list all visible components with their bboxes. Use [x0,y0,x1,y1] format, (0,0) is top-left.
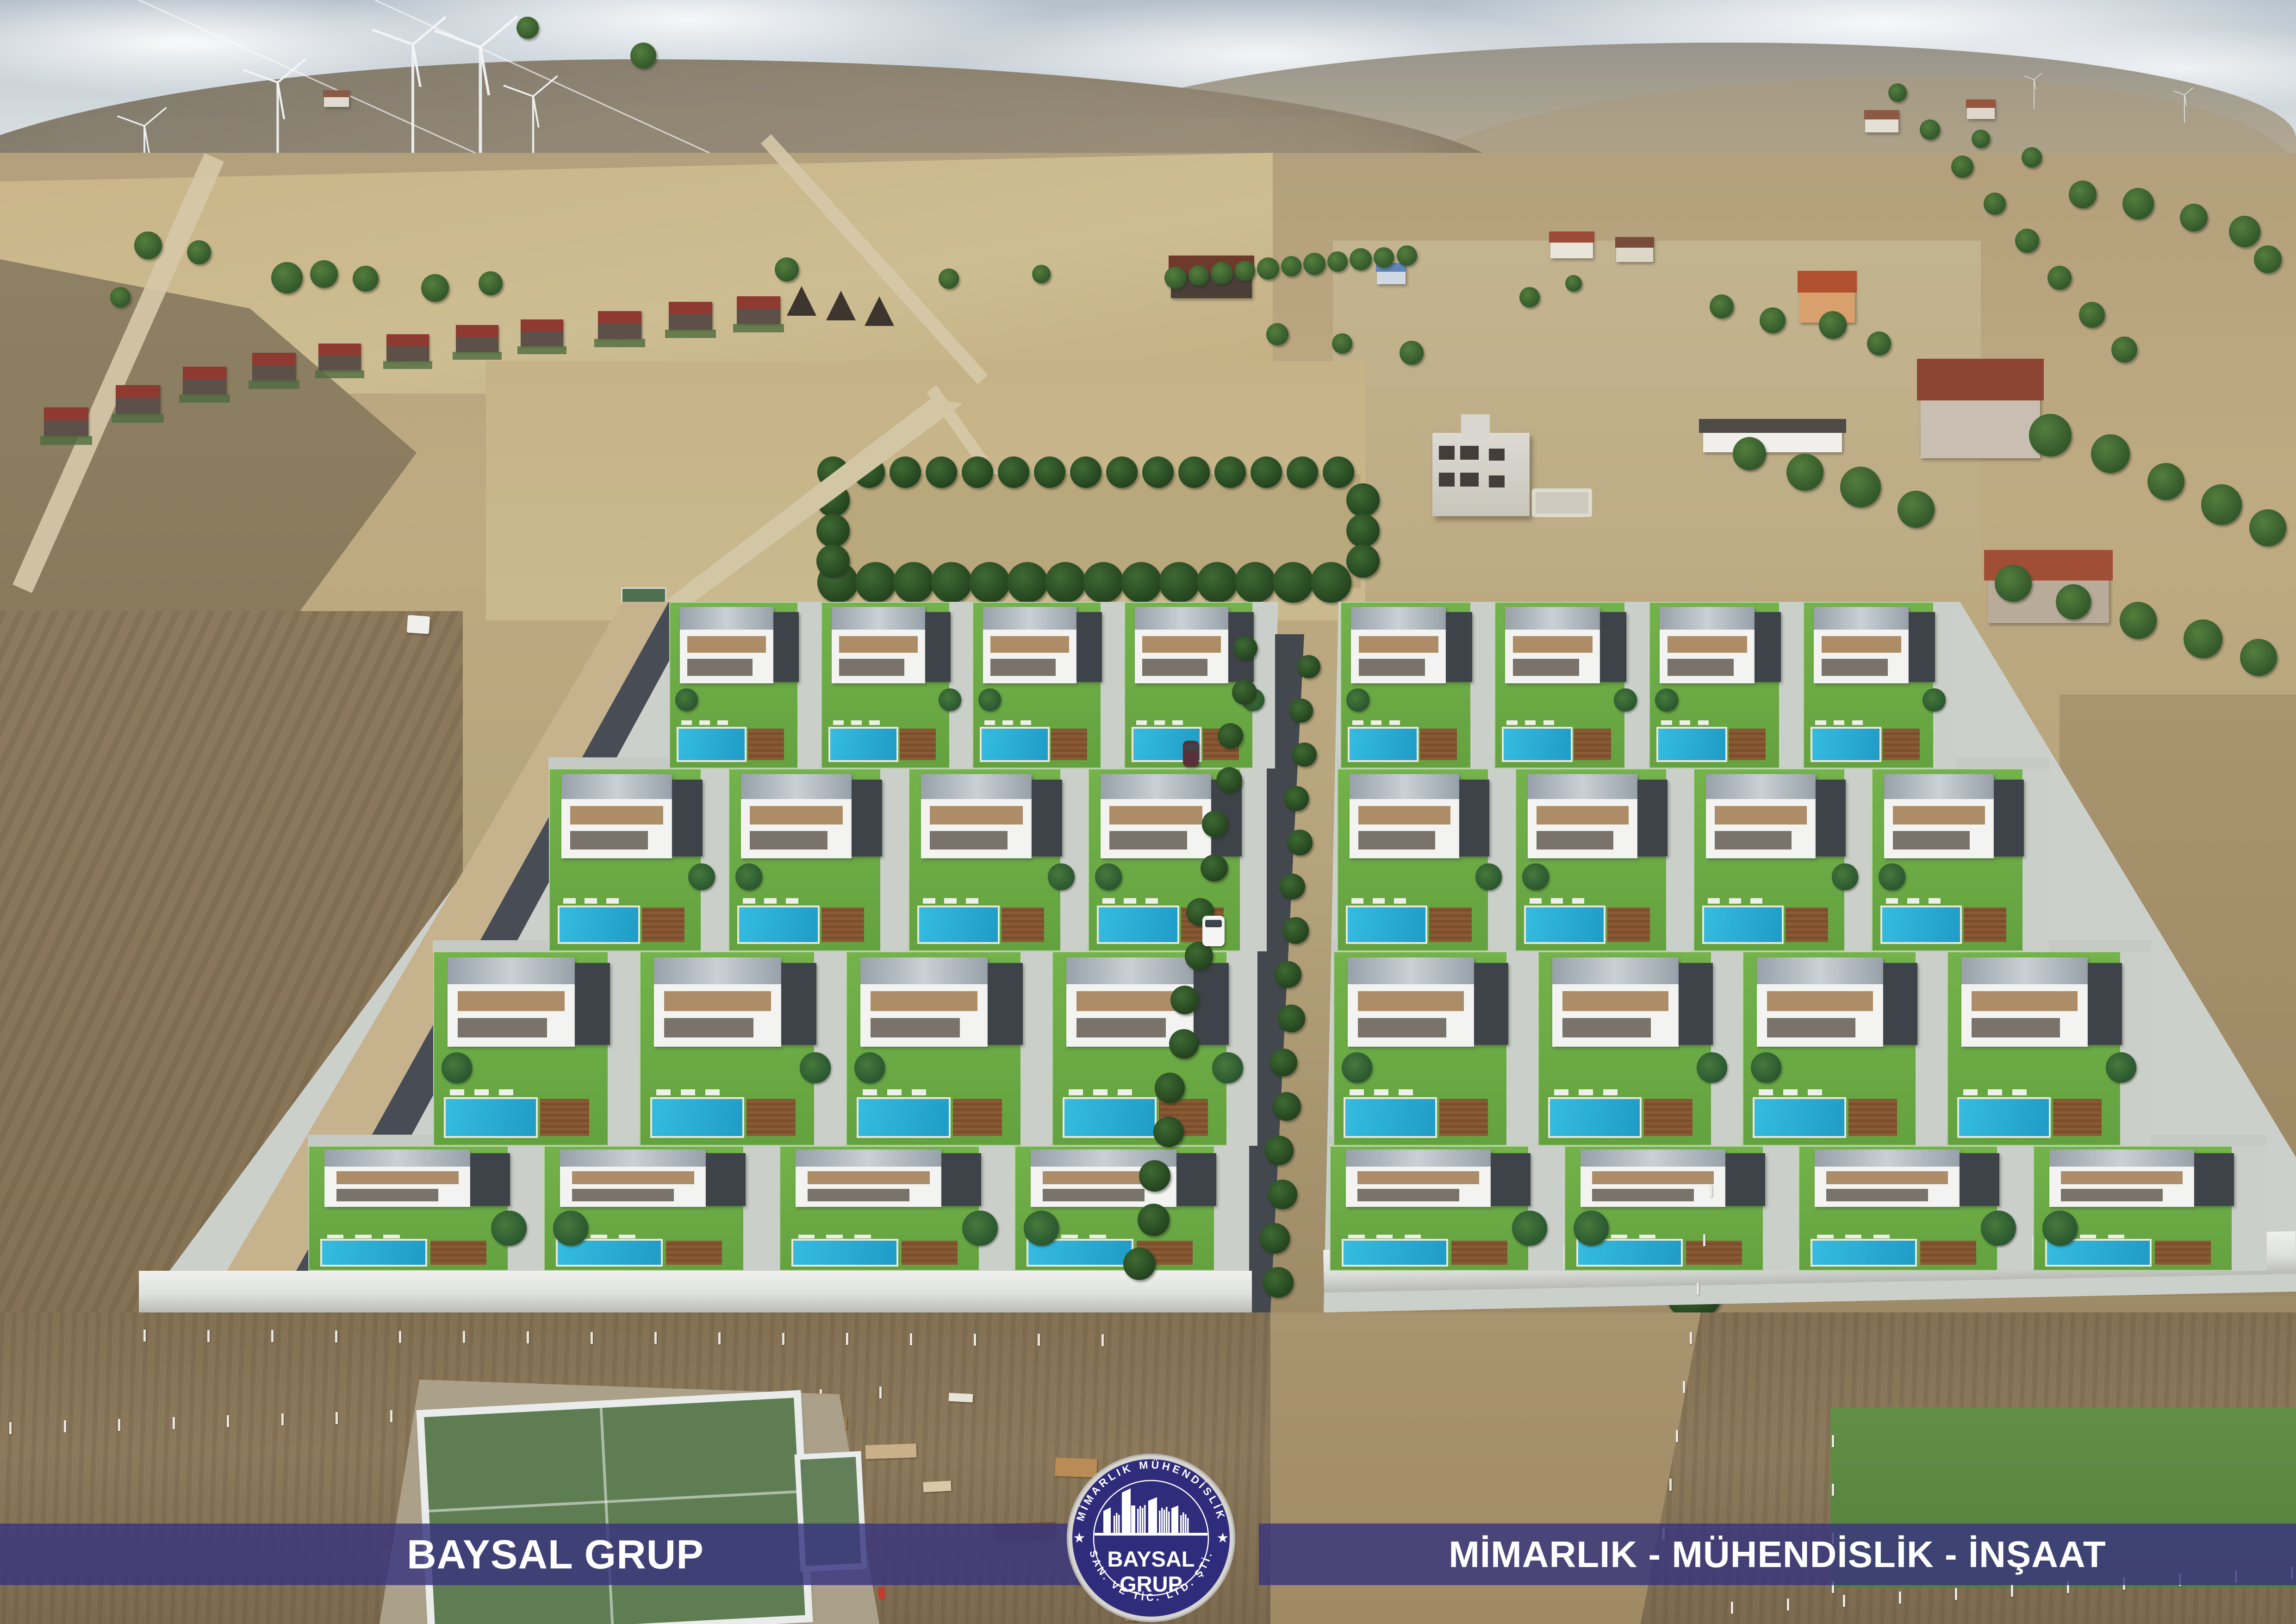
villa-pool-deck [902,1241,958,1264]
villa-house [1135,607,1228,684]
line [480,16,518,47]
tree [1233,636,1257,660]
sun-lounger [1661,720,1672,725]
tree [926,456,957,488]
tree [1214,456,1246,488]
villa-driveway [508,1146,543,1271]
tree [1289,699,1313,723]
villa-roof [1706,774,1816,800]
fence-post [9,1422,12,1434]
villa-window-band [1537,831,1613,849]
fence-post [118,1419,120,1431]
tree [1332,333,1352,354]
villa-house [2049,1149,2194,1207]
villa-dark-wing [1446,612,1472,682]
villa-window-band [1537,806,1629,824]
villa-pool [919,907,998,942]
villa-window-band [1972,991,2078,1011]
background-house [252,353,296,381]
villa-dark-wing [1725,1153,1765,1206]
house-roof [252,353,296,365]
house-yard-hedge [179,394,230,403]
tree [1070,456,1101,488]
tree [1400,341,1424,365]
sun-lounger [1089,1235,1106,1238]
tree [1251,456,1282,488]
house-yard-hedge [315,370,365,378]
car-on-road [1202,916,1225,946]
villa-window-band [572,1171,694,1184]
villa-pool-deck [1451,1241,1507,1264]
distant-house [1865,110,1898,132]
villa-driveway [1020,951,1052,1146]
villa-window-band [1826,1189,1928,1201]
house-roof [44,407,88,420]
fence-post [336,1412,338,1424]
palm-tree [962,1211,997,1246]
roof-ridge [429,1490,799,1512]
villa [1515,768,1692,951]
villa-pool [560,907,638,942]
villa-driveway [1711,951,1742,1146]
palm-tree [442,1052,473,1083]
tree [2029,414,2072,456]
villa [1649,602,1802,768]
unfinished-building [1432,433,1530,516]
villa-pool [1882,907,1960,942]
villa-window-band [750,831,828,849]
sun-lounger [1815,720,1826,725]
tree [1920,119,1940,140]
tree [1263,1267,1294,1298]
villa-roof [832,607,925,630]
tree [1153,1117,1184,1148]
tree [271,262,303,294]
tree [1211,262,1233,284]
sun-lounger [1348,1235,1364,1238]
sun-lounger [984,720,995,725]
house-yard-hedge [112,414,163,423]
tree [1034,456,1065,488]
tree [1733,437,1766,470]
villa-house [1346,1149,1491,1207]
tree [816,483,850,517]
tree [1155,1073,1185,1103]
tree [1519,287,1540,307]
villa-house [560,1149,705,1207]
villa-driveway [1916,951,1946,1146]
tree [1264,1136,1294,1165]
tree [1327,251,1348,272]
tree [1840,467,1881,507]
villa-dark-wing [1816,780,1846,856]
villa-driveway [2022,768,2049,951]
villa-driveway [1101,602,1123,768]
fence-post [1101,1334,1104,1346]
palm-tree [1923,688,1946,712]
house-roof [386,334,429,346]
tree [2249,509,2286,546]
villa-window-band [570,831,648,849]
villa-pool-deck [1607,907,1650,942]
unfinished-pool-structure [1532,488,1592,517]
villa-pool [1755,1099,1844,1136]
villa-window-band [1142,659,1207,675]
background-house [737,296,780,324]
villa-driveway [743,1146,778,1271]
perimeter-wall-west [139,1271,1252,1312]
sun-lounger [699,720,710,725]
palm-tree [1512,1211,1547,1246]
villa-window-band [1513,636,1593,653]
wind-turbine-icon [2025,73,2042,109]
green-roof-shack [622,589,665,610]
villa-window-band [664,1018,753,1038]
villa-pool-deck [900,729,936,760]
fence-post [390,1410,392,1422]
roof-ridge [600,1408,614,1624]
villa-driveway [1666,768,1692,951]
background-house [598,311,641,339]
palm-tree [1346,688,1369,712]
villa-pool [1350,729,1417,760]
villa-window-band [570,806,663,824]
villa-pool-deck [953,1099,1002,1136]
fence-post [2011,1585,2013,1597]
sun-lounger [1886,898,1898,904]
villa [308,1146,543,1271]
tree [853,456,885,488]
villa-house [1884,774,1994,858]
villa-roof [1101,774,1211,800]
villa-window-band [1767,991,1873,1011]
fence-post [64,1420,66,1432]
tree [187,240,211,264]
debris-pile [923,1480,951,1492]
villa [1742,951,1946,1146]
villa-dark-wing [1637,780,1668,856]
sun-lounger [1834,720,1844,725]
villa-dark-wing [781,963,816,1044]
distant-house [1616,237,1653,262]
tree [1218,723,1243,749]
palm-tree [688,863,715,890]
vehicle-glass [1205,920,1222,927]
villa-pool-deck [642,907,685,942]
villa-pool-deck [2155,1241,2211,1264]
window-opening [1439,446,1455,460]
sun-lounger [1394,898,1406,904]
tree [1032,265,1051,283]
villa-window-band [336,1171,459,1184]
tree [1083,562,1124,603]
villa-house [1350,774,1459,858]
tree [1142,456,1174,488]
tree [2091,434,2130,473]
villa-window-band [1109,831,1187,849]
sun-lounger [1611,1235,1627,1238]
fence-post [227,1415,229,1427]
distant-house [1550,231,1593,258]
bar [1137,1509,1139,1534]
villa-window-band [2061,1171,2183,1184]
tree [2047,266,2072,290]
villa-driveway [2232,1146,2267,1271]
villa-window-band [1767,1018,1855,1038]
palm-tree [1212,1052,1243,1083]
villa [1538,951,1742,1146]
villa [728,768,907,951]
tree [1972,130,1990,148]
sun-lounger [966,898,978,904]
tree [1819,311,1847,339]
villa [1340,602,1493,768]
fence-post [281,1413,284,1425]
line [118,116,144,126]
villa-pool [1526,907,1604,942]
sun-lounger [923,898,935,904]
sun-lounger [851,720,862,725]
sun-lounger [355,1235,371,1238]
villa [1693,768,1871,951]
tree [939,269,959,289]
villa-pool [322,1241,425,1264]
sun-lounger [1350,1089,1364,1095]
palm-tree [1751,1052,1781,1083]
sun-lounger [1154,720,1165,725]
villa-driveway [949,602,972,768]
sun-lounger [1708,898,1720,904]
tree [1201,855,1228,882]
background-house [44,407,88,436]
tree [1178,456,1210,488]
villa-window-band [1893,806,1985,824]
background-house [318,344,361,370]
villa-roof [1346,1149,1491,1167]
villa-dark-wing [1679,963,1713,1044]
tree [630,43,656,69]
villa [1564,1146,1798,1271]
villa-window-band [1826,1171,1948,1184]
villa [433,951,639,1146]
villa-roof [1815,1149,1960,1167]
villa-roof [860,957,988,984]
villa-dark-wing [1194,963,1228,1044]
tree [1007,562,1048,603]
tree [1397,245,1417,266]
villa-pool-deck [1051,729,1087,760]
villa-pool-deck [1420,729,1456,760]
villa-window-band [1358,1018,1446,1038]
bar [1182,1512,1184,1534]
villa-pool [1345,1099,1435,1136]
tree [2122,188,2154,219]
villa-window-band [1592,1189,1693,1201]
house-yard-hedge [383,361,433,369]
distant-house [1967,100,1995,119]
villa-pool-deck [1964,907,2006,942]
fence-post [1683,1381,1685,1393]
villa-pool [982,729,1048,760]
tree [1760,307,1786,333]
villa-roof [560,1149,705,1167]
villa-dark-wing [706,1153,746,1206]
tree [2240,639,2277,676]
bar [1159,1511,1161,1534]
tree [1297,655,1320,678]
villa-window-band [458,991,565,1011]
tree [893,562,934,603]
tree [1268,1180,1297,1209]
villa-house [1961,957,2088,1047]
window-opening [1489,449,1505,461]
villa-house [1552,957,1679,1047]
tree [1045,562,1086,603]
villa-dark-wing [470,1153,510,1206]
sun-lounger [1603,1089,1618,1095]
tree [1159,562,1200,603]
aerial-site-photo: BAYSAL GRUP MİMARLIK - MÜHENDİSLİK - İNŞ… [0,0,2296,1624]
sun-lounger [717,720,728,725]
palm-tree [1879,863,1905,890]
fence-post [1676,1430,1678,1442]
villa-roof [1660,607,1755,630]
villa-pool-deck [1729,729,1765,760]
villa-driveway [814,951,845,1146]
sun-lounger [681,1089,695,1095]
tree [516,17,539,39]
villa-driveway [1252,602,1275,768]
villa [1333,951,1537,1146]
background-house [386,334,429,361]
villa-pool [678,729,745,760]
villa-pool [1064,1099,1155,1136]
fence-post [335,1330,337,1343]
sun-lounger [1069,1089,1083,1095]
villa-roof [741,774,852,800]
sun-lounger [1698,720,1709,725]
villa-pool-deck [1002,907,1045,942]
villa-driveway [2120,951,2151,1146]
distant-house [1703,419,1842,452]
palm-tree [1048,863,1075,890]
fence-post [399,1331,401,1343]
villa-window-band [1592,1171,1714,1184]
villa-roof [1757,957,1883,984]
villa-pool-deck [666,1241,722,1264]
sun-lounger [1145,898,1158,904]
palm-tree [1832,863,1858,890]
tree [816,544,850,578]
villa [1088,768,1267,951]
villa-window-band [839,659,904,675]
tree [1274,961,1301,988]
tree [2201,484,2242,525]
sun-lounger [1873,1235,1890,1238]
villa [669,602,820,768]
villa-roof [983,607,1076,630]
palm-tree [1981,1211,2016,1246]
villa [846,951,1052,1146]
tree [1346,514,1380,547]
villa-roof [1552,957,1679,984]
sun-lounger [1102,898,1115,904]
villa-pool-deck [821,907,865,942]
villa [1803,602,1956,768]
fence-post [654,1332,657,1344]
villa-driveway [1470,602,1493,768]
tree [1867,331,1891,356]
block [1131,1505,1135,1534]
tree [998,456,1029,488]
villa-driveway [1488,768,1514,951]
villa-pool [1550,1099,1640,1136]
sun-lounger [1376,1235,1393,1238]
fence-post [879,1387,882,1399]
house-roof [521,319,563,331]
villa-window-band [336,1189,438,1201]
villa-pool [652,1099,742,1136]
villa-pool-deck [1429,907,1472,942]
tree [310,260,338,288]
villa-dark-wing [941,1153,981,1206]
construction-building-green-roof [424,1398,805,1624]
fence-post [910,1333,912,1345]
villa-roof [1505,607,1600,630]
villa-driveway [701,768,728,951]
line [278,58,306,82]
tree [1188,265,1209,286]
tree [2180,204,2208,231]
villa-window-band [1357,1189,1459,1201]
sun-lounger [1371,720,1381,725]
tree [1303,253,1325,275]
villa-window-band [750,806,843,824]
sun-lounger [619,1235,635,1238]
sun-lounger [2080,1235,2096,1238]
palm-tree [1614,688,1637,712]
fence-post [974,1334,976,1346]
tree [1292,743,1317,767]
palm-tree [2042,1211,2078,1246]
villa-house [1580,1149,1725,1207]
villa-window-band [1668,636,1747,653]
villa-pool-deck [430,1241,487,1264]
sun-lounger [1136,720,1147,725]
sun-lounger [2108,1235,2124,1238]
palm-tree [978,688,1001,711]
villa [779,1146,1014,1271]
tree [1138,1204,1170,1236]
villa-window-band [1822,659,1888,675]
sun-lounger [1929,898,1941,904]
tree [353,266,379,292]
bar [1164,1510,1165,1534]
sun-lounger [1530,898,1542,904]
background-house [183,367,226,394]
villa-pool [1812,729,1880,760]
house-roof [598,311,641,324]
villa-roof [1961,957,2088,984]
sun-lounger [606,898,619,904]
sun-lounger [2012,1089,2027,1095]
villa [549,768,728,951]
sun-lounger [1506,720,1517,725]
house-roof [323,90,349,97]
villa-driveway [880,768,907,951]
fence-post [1710,1185,1712,1197]
villa-house [1351,607,1446,684]
